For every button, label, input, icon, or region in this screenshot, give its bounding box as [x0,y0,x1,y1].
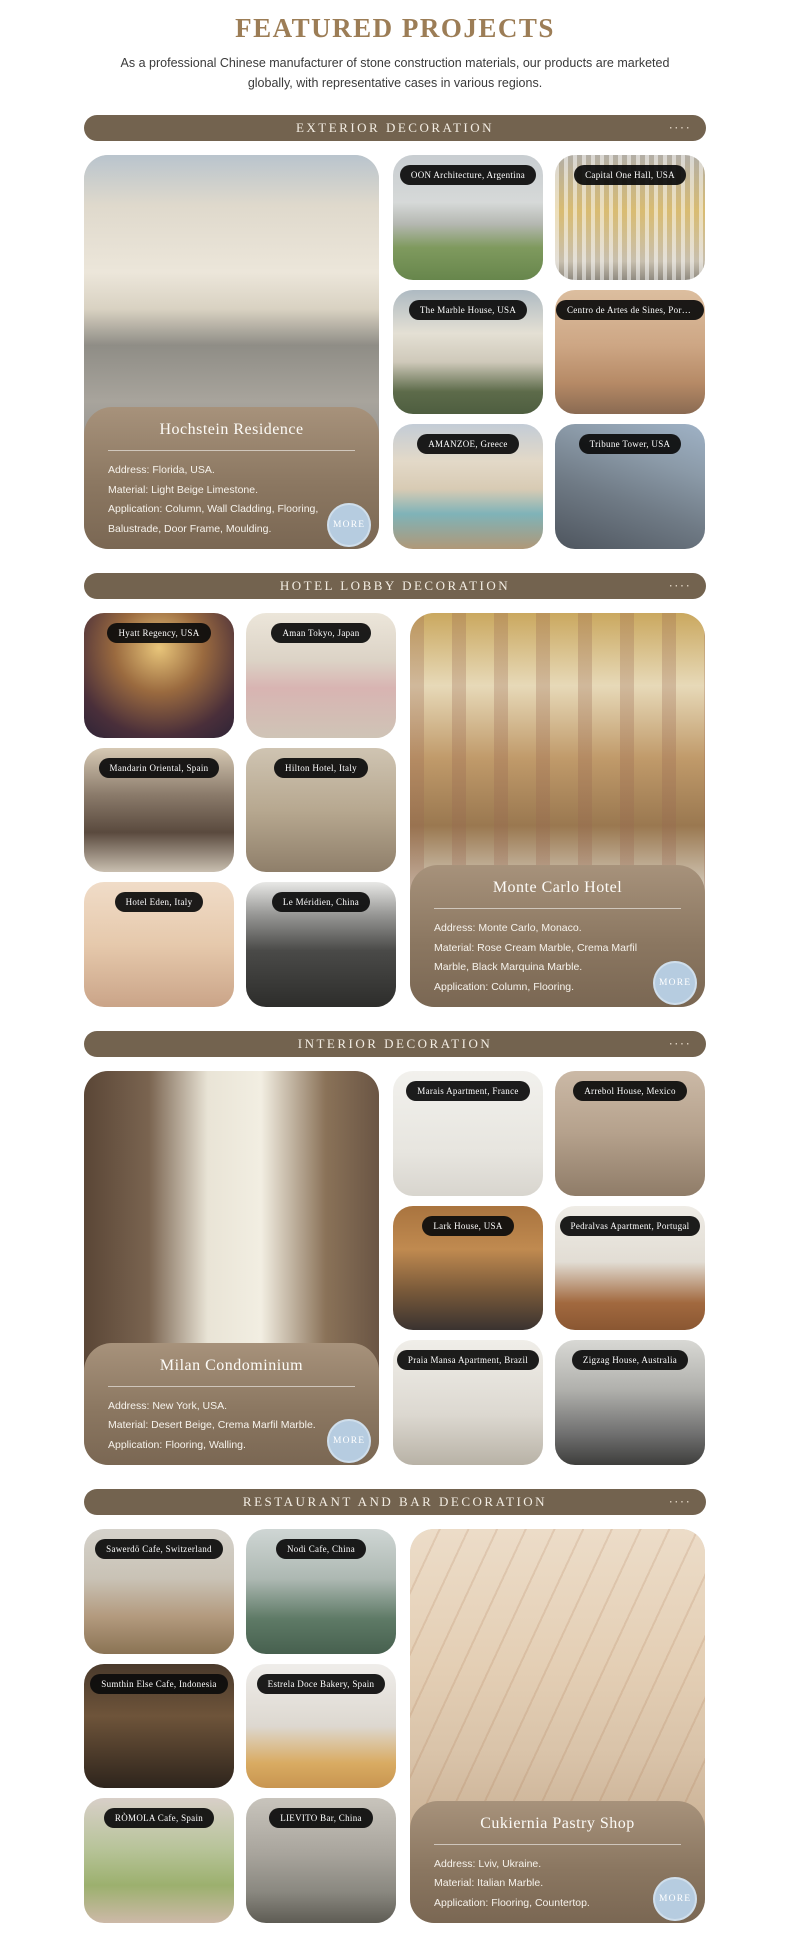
project-card[interactable]: Pedralvas Apartment, Portugal [555,1206,705,1331]
featured-detail-material-cont: Marble, Black Marquina Marble. [434,960,681,975]
project-card[interactable]: Nodi Cafe, China [246,1529,396,1654]
section-header: INTERIOR DECORATION ···· [84,1031,706,1057]
more-button[interactable]: MORE [653,1877,697,1921]
featured-info-panel: Hochstein Residence Address: Florida, US… [84,407,379,549]
featured-detail-application: Application: Column, Flooring. [434,980,681,995]
project-card[interactable]: OON Architecture, Argentina [393,155,543,280]
project-card[interactable]: AMANZOE, Greece [393,424,543,549]
section-header: RESTAURANT AND BAR DECORATION ···· [84,1489,706,1515]
featured-project-card[interactable]: Monte Carlo Hotel Address: Monte Carlo, … [410,613,705,1007]
featured-project-card[interactable]: Milan Condominium Address: New York, USA… [84,1071,379,1465]
page-title: FEATURED PROJECTS [84,13,706,44]
section-hotel-lobby-decoration: HOTEL LOBBY DECORATION ···· Hyatt Regenc… [84,573,706,1007]
project-label: Arrebol House, Mexico [573,1081,687,1101]
section-title: INTERIOR DECORATION [298,1036,492,1052]
project-label: AMANZOE, Greece [417,434,518,454]
project-card[interactable]: Lark House, USA [393,1206,543,1331]
ellipsis-more-icon[interactable]: ···· [668,1493,691,1509]
project-label: Lark House, USA [422,1216,513,1236]
project-card[interactable]: Sawerdö Cafe, Switzerland [84,1529,234,1654]
featured-detail-application: Application: Flooring, Countertop. [434,1896,681,1911]
featured-title: Monte Carlo Hotel [434,879,681,897]
project-label: RÒMOLA Cafe, Spain [104,1808,214,1828]
section-restaurant-bar-decoration: RESTAURANT AND BAR DECORATION ···· Sawer… [84,1489,706,1923]
project-card[interactable]: The Marble House, USA [393,290,543,415]
project-label: Sawerdö Cafe, Switzerland [95,1539,223,1559]
project-label: Centro de Artes de Sines, Portugal [556,300,704,320]
featured-detail-application: Application: Flooring, Walling. [108,1438,355,1453]
featured-detail-address: Address: Lviv, Ukraine. [434,1857,681,1872]
section-exterior-decoration: EXTERIOR DECORATION ···· Hochstein Resid… [84,115,706,549]
project-label: Estrela Doce Bakery, Spain [257,1674,386,1694]
project-label: Pedralvas Apartment, Portugal [560,1216,701,1236]
ellipsis-more-icon[interactable]: ···· [668,577,691,593]
project-label: Hilton Hotel, Italy [274,758,368,778]
featured-detail-address: Address: Monte Carlo, Monaco. [434,921,681,936]
section-header: EXTERIOR DECORATION ···· [84,115,706,141]
featured-title: Cukiernia Pastry Shop [434,1815,681,1833]
project-card[interactable]: Hilton Hotel, Italy [246,748,396,873]
divider [434,1844,681,1845]
featured-detail-material: Material: Rose Cream Marble, Crema Marfi… [434,941,681,956]
section-title: EXTERIOR DECORATION [296,120,494,136]
project-label: Zigzag House, Australia [572,1350,688,1370]
project-label: OON Architecture, Argentina [400,165,536,185]
project-card[interactable]: Mandarin Oriental, Spain [84,748,234,873]
ellipsis-more-icon[interactable]: ···· [668,119,691,135]
project-card[interactable]: Le Méridien, China [246,882,396,1007]
project-label: Le Méridien, China [272,892,370,912]
section-header: HOTEL LOBBY DECORATION ···· [84,573,706,599]
featured-info-panel: Monte Carlo Hotel Address: Monte Carlo, … [410,865,705,1007]
divider [108,450,355,451]
featured-photo [410,1529,705,1829]
featured-detail-address: Address: Florida, USA. [108,463,355,478]
project-card[interactable]: RÒMOLA Cafe, Spain [84,1798,234,1923]
featured-detail-material: Material: Light Beige Limestone. [108,483,355,498]
project-card[interactable]: Aman Tokyo, Japan [246,613,396,738]
project-card[interactable]: Hotel Eden, Italy [84,882,234,1007]
project-label: LIEVITO Bar, China [269,1808,373,1828]
project-label: Praia Mansa Apartment, Brazil [397,1350,539,1370]
project-card[interactable]: Hyatt Regency, USA [84,613,234,738]
project-label: Nodi Cafe, China [276,1539,366,1559]
project-card[interactable]: Praia Mansa Apartment, Brazil [393,1340,543,1465]
section-cards: Hyatt Regency, USA Aman Tokyo, Japan Man… [84,613,706,1007]
project-label: Tribune Tower, USA [579,434,682,454]
project-grid: Sawerdö Cafe, Switzerland Nodi Cafe, Chi… [84,1529,396,1923]
featured-info-panel: Cukiernia Pastry Shop Address: Lviv, Ukr… [410,1801,705,1924]
featured-detail-material: Material: Desert Beige, Crema Marfil Mar… [108,1418,355,1433]
featured-detail-application: Application: Column, Wall Cladding, Floo… [108,502,355,517]
more-button[interactable]: MORE [327,503,371,547]
featured-detail-material: Material: Italian Marble. [434,1876,681,1891]
project-grid: Marais Apartment, France Arrebol House, … [393,1071,705,1465]
project-card[interactable]: Zigzag House, Australia [555,1340,705,1465]
project-label: Hotel Eden, Italy [115,892,204,912]
featured-detail-address: Address: New York, USA. [108,1399,355,1414]
featured-title: Milan Condominium [108,1357,355,1375]
project-label: Capital One Hall, USA [574,165,686,185]
divider [108,1386,355,1387]
featured-info-panel: Milan Condominium Address: New York, USA… [84,1343,379,1466]
section-title: HOTEL LOBBY DECORATION [280,578,510,594]
page-subtitle: As a professional Chinese manufacturer o… [115,53,675,93]
more-button[interactable]: MORE [653,961,697,1005]
project-label: Mandarin Oriental, Spain [99,758,220,778]
section-title: RESTAURANT AND BAR DECORATION [243,1494,547,1510]
featured-project-card[interactable]: Hochstein Residence Address: Florida, US… [84,155,379,549]
divider [434,908,681,909]
more-button[interactable]: MORE [327,1419,371,1463]
project-label: Sumthin Else Cafe, Indonesia [90,1674,227,1694]
project-card[interactable]: LIEVITO Bar, China [246,1798,396,1923]
page-header: FEATURED PROJECTS As a professional Chin… [84,0,706,93]
project-card[interactable]: Centro de Artes de Sines, Portugal [555,290,705,415]
section-cards: Sawerdö Cafe, Switzerland Nodi Cafe, Chi… [84,1529,706,1923]
project-card[interactable]: Tribune Tower, USA [555,424,705,549]
section-cards: Milan Condominium Address: New York, USA… [84,1071,706,1465]
project-grid: OON Architecture, Argentina Capital One … [393,155,705,549]
featured-photo [410,613,705,893]
section-interior-decoration: INTERIOR DECORATION ···· Milan Condomini… [84,1031,706,1465]
project-label: Marais Apartment, France [406,1081,529,1101]
featured-projects-page: FEATURED PROJECTS As a professional Chin… [84,0,706,1923]
featured-photo [84,155,379,435]
project-card[interactable]: Capital One Hall, USA [555,155,705,280]
ellipsis-more-icon[interactable]: ···· [668,1035,691,1051]
project-label: Hyatt Regency, USA [107,623,210,643]
project-card[interactable]: Estrela Doce Bakery, Spain [246,1664,396,1789]
featured-photo [84,1071,379,1371]
section-cards: Hochstein Residence Address: Florida, US… [84,155,706,549]
project-card[interactable]: Arrebol House, Mexico [555,1071,705,1196]
featured-title: Hochstein Residence [108,421,355,439]
project-grid: Hyatt Regency, USA Aman Tokyo, Japan Man… [84,613,396,1007]
project-card[interactable]: Marais Apartment, France [393,1071,543,1196]
featured-project-card[interactable]: Cukiernia Pastry Shop Address: Lviv, Ukr… [410,1529,705,1923]
project-label: Aman Tokyo, Japan [271,623,370,643]
featured-detail-application-cont: Balustrade, Door Frame, Moulding. [108,522,355,537]
project-card[interactable]: Sumthin Else Cafe, Indonesia [84,1664,234,1789]
project-label: The Marble House, USA [409,300,527,320]
